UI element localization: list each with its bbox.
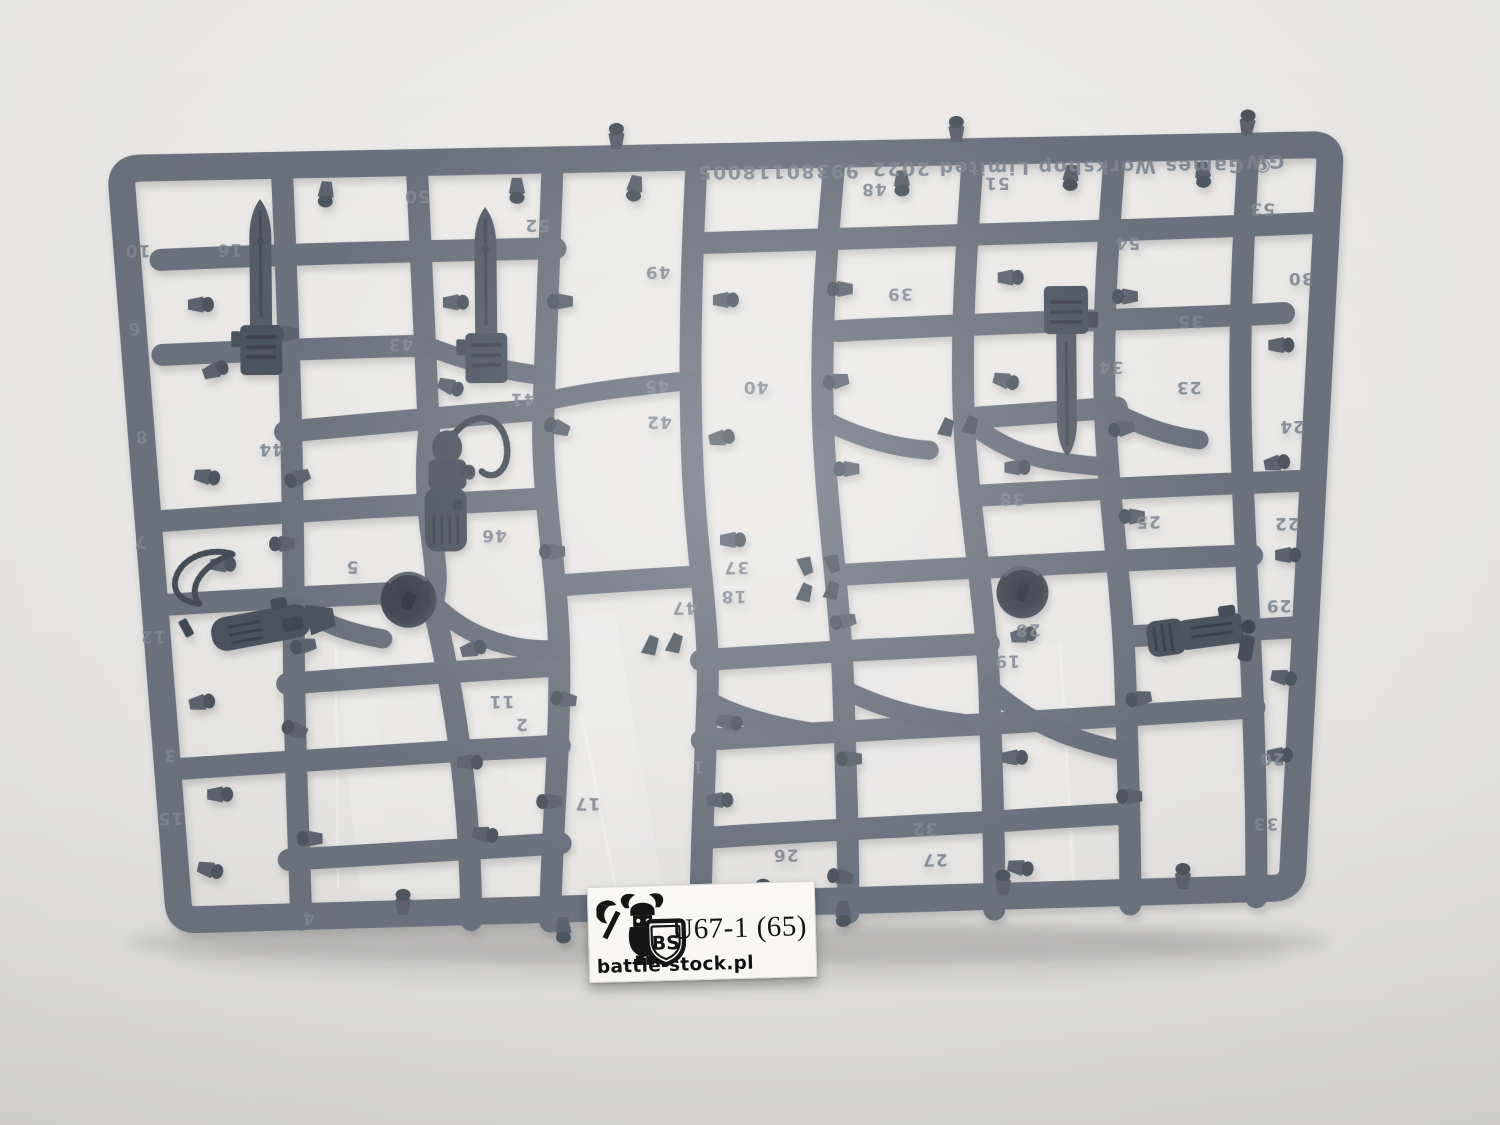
stock-label: BS U67-1 (65) battle-stock.pl: [587, 881, 818, 983]
moulding-nub: [539, 543, 565, 559]
part-number: 32: [912, 818, 938, 838]
part-number: 28: [1015, 619, 1041, 639]
part-number: 51: [984, 173, 1010, 193]
part-number: 6: [128, 318, 141, 338]
part-number: 54: [1114, 232, 1140, 252]
moulding-nub: [457, 754, 483, 770]
part-number: 4: [302, 908, 315, 928]
moulding-nub: [536, 793, 562, 809]
moulding-nub: [992, 370, 1021, 392]
part-number: 42: [646, 411, 672, 431]
part-number: 23: [1176, 377, 1202, 397]
part-number: 12: [140, 626, 166, 646]
part-number: 30: [1288, 268, 1314, 288]
moulding-nub: [1004, 459, 1030, 475]
moulding-nub: [948, 116, 964, 142]
part-number: 39: [887, 283, 913, 303]
moulding-nub: [827, 281, 853, 297]
moulding-nub: [708, 428, 736, 448]
photo-frame: 99380118005 © Games Workshop Limited 202…: [0, 0, 1500, 1125]
moulding-nub: [1002, 749, 1028, 765]
part-number: 49: [645, 261, 671, 281]
part-number: 5: [346, 556, 359, 576]
product-code-text: 99380118005: [697, 160, 859, 183]
part-number: 35: [1177, 311, 1203, 331]
part-number: 16: [217, 239, 243, 259]
copyright-text: © Games Workshop Limited 2022: [871, 154, 1273, 180]
part-number: 15: [157, 808, 183, 828]
moulding-nub: [1116, 788, 1142, 804]
moulding-nub: [443, 294, 469, 310]
part-number: 24: [1279, 416, 1305, 436]
moulding-nub: [555, 917, 571, 943]
part-number: 43: [387, 334, 413, 354]
part-number: 27: [922, 849, 948, 869]
part-number: 37: [723, 557, 749, 577]
moulding-nub: [1175, 863, 1191, 889]
moulding-nub: [720, 532, 746, 548]
part-number: 10: [125, 240, 151, 260]
moulding-nub: [1239, 109, 1257, 136]
part-number: 11: [488, 691, 514, 711]
part-number: 46: [481, 525, 507, 545]
base-disc-part: [380, 572, 436, 628]
part-number: 44: [258, 439, 284, 459]
label-code: U67-1 (65): [672, 910, 808, 947]
moulding-nub: [317, 181, 335, 208]
part-number: 52: [524, 215, 550, 235]
part-number: 2: [515, 714, 528, 734]
part-number: 29: [1266, 595, 1292, 615]
moulding-nub: [713, 292, 739, 308]
moulding-nub: [707, 792, 733, 808]
moulding-nub: [509, 178, 525, 204]
moulding-nub: [436, 375, 466, 399]
part-number: 53: [1249, 198, 1275, 218]
part-number: 34: [1098, 357, 1124, 377]
part-number: 33: [1253, 813, 1279, 833]
base-disc-part: [996, 566, 1048, 618]
moulding-nub: [835, 901, 851, 927]
part-number: 8: [135, 426, 148, 446]
moulding-nub: [625, 174, 645, 202]
part-number: 25: [1135, 511, 1161, 531]
moulding-nub: [1275, 547, 1301, 563]
part-number: 19: [994, 650, 1020, 670]
moulding-nub: [188, 296, 214, 312]
part-number: 3: [163, 745, 176, 765]
moulding-nub: [207, 786, 233, 802]
part-number: 7: [133, 531, 146, 551]
part-number: 17: [574, 793, 600, 813]
moulding-nub: [1112, 288, 1138, 304]
label-website: battle-stock.pl: [597, 953, 754, 978]
moulding-nub: [188, 692, 216, 712]
part-number: 45: [644, 375, 670, 395]
moulding-nub: [833, 461, 859, 477]
part-number: 48: [861, 179, 887, 199]
moulding-nub: [196, 859, 225, 881]
brand-text: GW: [1245, 150, 1285, 172]
part-number: 18: [721, 586, 747, 606]
moulding-nub: [995, 870, 1011, 896]
part-number: 40: [743, 377, 769, 397]
part-number: 20: [1259, 748, 1285, 768]
part-number: 41: [510, 389, 536, 409]
moulding-nub: [269, 536, 295, 552]
moulding-nub: [836, 751, 862, 767]
moulding-nub: [608, 123, 624, 149]
moulding-nub: [998, 269, 1024, 285]
part-number: 38: [999, 488, 1025, 508]
moulding-nub: [395, 889, 411, 915]
part-number: 50: [404, 186, 430, 206]
moulding-nub: [547, 293, 573, 309]
moulding-nub: [1263, 453, 1291, 473]
moulding-nub: [297, 831, 323, 847]
part-number: 26: [773, 844, 799, 864]
moulding-nub: [193, 467, 221, 487]
moulding-nub: [1268, 337, 1294, 353]
part-number: 1: [691, 756, 704, 776]
part-number: 22: [1274, 513, 1300, 533]
sprue: 99380118005 © Games Workshop Limited 202…: [121, 108, 1336, 947]
part-number: 47: [672, 597, 698, 617]
